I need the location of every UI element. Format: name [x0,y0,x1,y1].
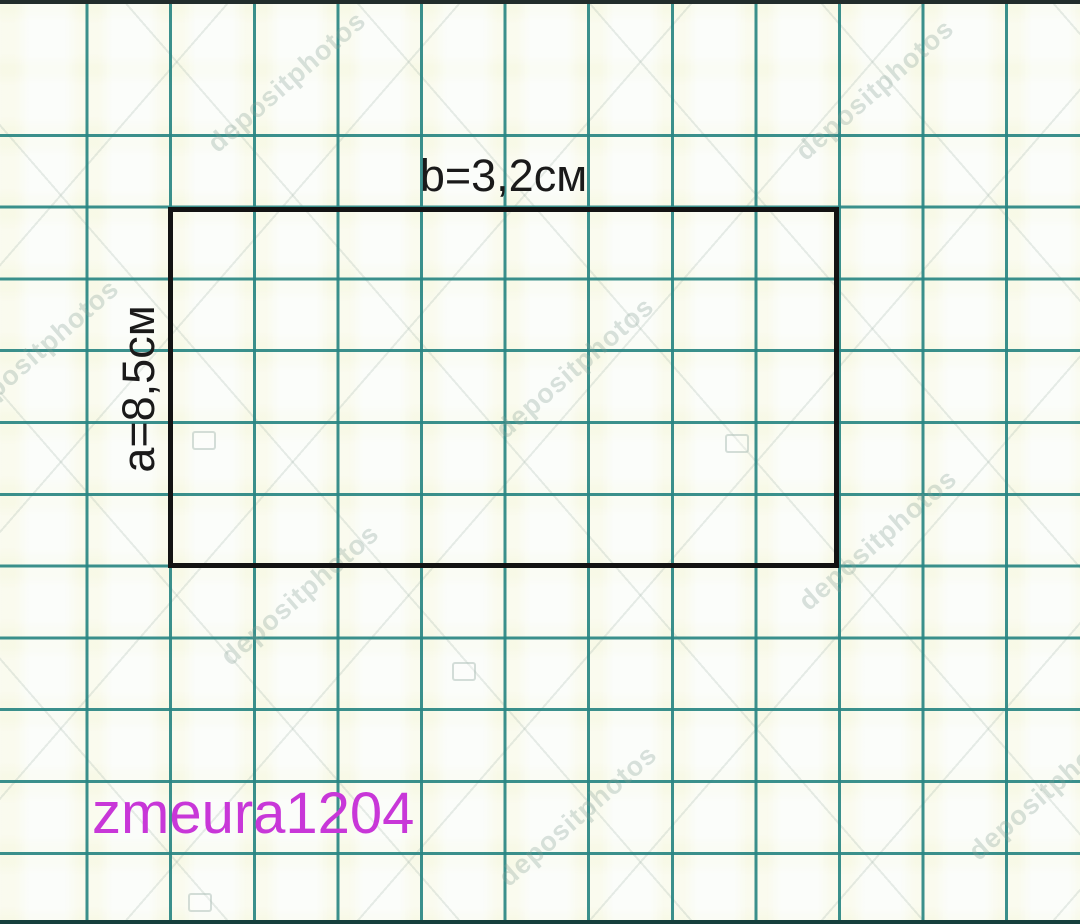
width-dimension-label: b=3,2см [168,150,839,202]
rectangle-figure [168,207,839,568]
stock-watermark-text: depositphotos [963,713,1080,867]
stock-watermark-logo-icon [188,893,212,912]
paper-bottom-edge-line [0,920,1080,924]
stock-watermark-text: depositphotos [493,739,664,893]
stock-watermark-text: depositphotos [0,273,125,427]
height-dimension-label: a=8,5см [113,305,165,472]
graph-paper-background: depositphotos depositphotos depositphoto… [0,0,1080,924]
stock-watermark-logo-icon [452,662,476,681]
username-watermark: zmeura1204 [92,780,414,847]
stock-watermark-text: depositphotos [202,5,373,159]
stock-watermark-text: depositphotos [790,13,961,167]
paper-top-edge-line [0,0,1080,4]
